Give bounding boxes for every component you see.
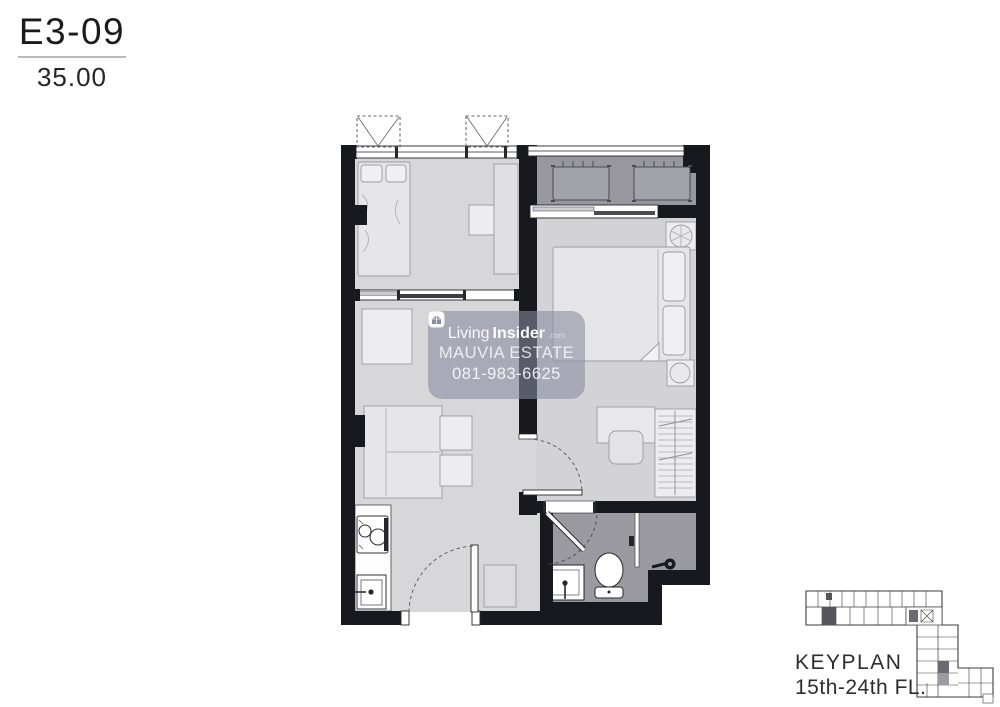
slider-panel: [357, 292, 399, 296]
entrance-door-leaf: [471, 545, 478, 612]
right-wall: [696, 145, 710, 585]
glass-handle: [629, 536, 634, 546]
toilet-drain: [608, 591, 611, 594]
watermark-estate-name: MAUVIA ESTATE: [439, 344, 574, 363]
wall-column: [341, 205, 367, 225]
ac-ledge: [357, 116, 508, 147]
bathroom-doorway: [545, 501, 595, 513]
cabinet-symbol: [494, 164, 518, 274]
balcony-door-stub: [656, 205, 696, 218]
pillow-symbol: [361, 165, 382, 182]
coffee-table-symbol: [440, 416, 472, 450]
shower-glass-symbol: [635, 512, 639, 567]
shower-head-center: [668, 562, 672, 566]
window-mullion: [395, 146, 398, 158]
lamp-symbol: [670, 363, 690, 383]
partition-jamb: [463, 290, 466, 300]
pillow-symbol: [663, 306, 685, 355]
bathroom-bottom-wall: [540, 602, 662, 625]
ac-condenser-symbol: [553, 167, 609, 200]
slider-panel: [533, 207, 594, 211]
pillow-symbol: [386, 165, 406, 182]
wall-column: [341, 415, 365, 447]
stove-control-strip: [384, 518, 388, 551]
balcony-sliding-door: [530, 205, 658, 218]
toilet-symbol: [595, 553, 623, 587]
keyplan-elevator: [938, 661, 949, 673]
brand-domain: .com: [548, 332, 565, 340]
pillow-symbol: [663, 252, 685, 301]
ac-condenser-symbol: [634, 167, 690, 200]
keyplan-corner-cell: [983, 694, 993, 703]
floorplan-page: E3-09 35.00: [0, 0, 1000, 707]
partition-jamb: [397, 290, 400, 300]
coffee-table-symbol: [440, 455, 472, 486]
watermark: LivingInsider.com MAUVIA ESTATE 081-983-…: [428, 311, 585, 399]
window-mullion: [465, 146, 468, 158]
sink-drain: [368, 589, 373, 594]
keyplan-caption: KEYPLAN 15th-24th FL.: [795, 651, 926, 701]
door-leaf: [523, 490, 582, 495]
keyplan-title: KEYPLAN: [795, 651, 926, 676]
shoe-cabinet-symbol: [484, 565, 516, 607]
door-jamb: [593, 502, 596, 513]
keyplan-floors: 15th-24th FL.: [795, 676, 926, 701]
door-jamb: [543, 502, 546, 513]
keyplan-elevator: [909, 610, 918, 622]
window-mullion: [504, 146, 507, 158]
ac-unit-vee: [358, 117, 399, 146]
ac-unit-dashed-symbol: [357, 116, 400, 147]
door-jamb: [401, 611, 409, 625]
keyplan-highlight-unit: [822, 607, 836, 625]
keyplan-shaft: [938, 673, 949, 685]
room-partition: [355, 289, 519, 301]
ac-unit-dashed-symbol: [466, 116, 508, 147]
bottom-wall-kitchen: [341, 611, 409, 625]
desk-chair-symbol: [609, 431, 643, 464]
door-jamb: [472, 611, 480, 625]
watermark-brand: LivingInsider.com: [448, 326, 566, 342]
brand-living: Living: [448, 326, 490, 342]
bottom-wall-entry: [477, 611, 543, 625]
house-cube-icon: [428, 311, 445, 328]
slider-panel: [399, 294, 465, 298]
top-left-corner: [341, 145, 357, 159]
bathroom-top-wall-right: [595, 501, 710, 513]
slider-panel: [594, 211, 655, 215]
partition-endcap: [355, 289, 360, 301]
watermark-phone: 081-983-6625: [452, 365, 561, 384]
shower-bottom-wall: [648, 570, 710, 585]
keyplan-core-mark: [826, 593, 832, 600]
brand-insider: Insider: [493, 326, 545, 342]
ac-unit-vee: [467, 117, 507, 146]
partition-endcap: [514, 289, 519, 301]
tv-console-symbol: [362, 309, 412, 364]
door-jamb: [519, 434, 537, 439]
